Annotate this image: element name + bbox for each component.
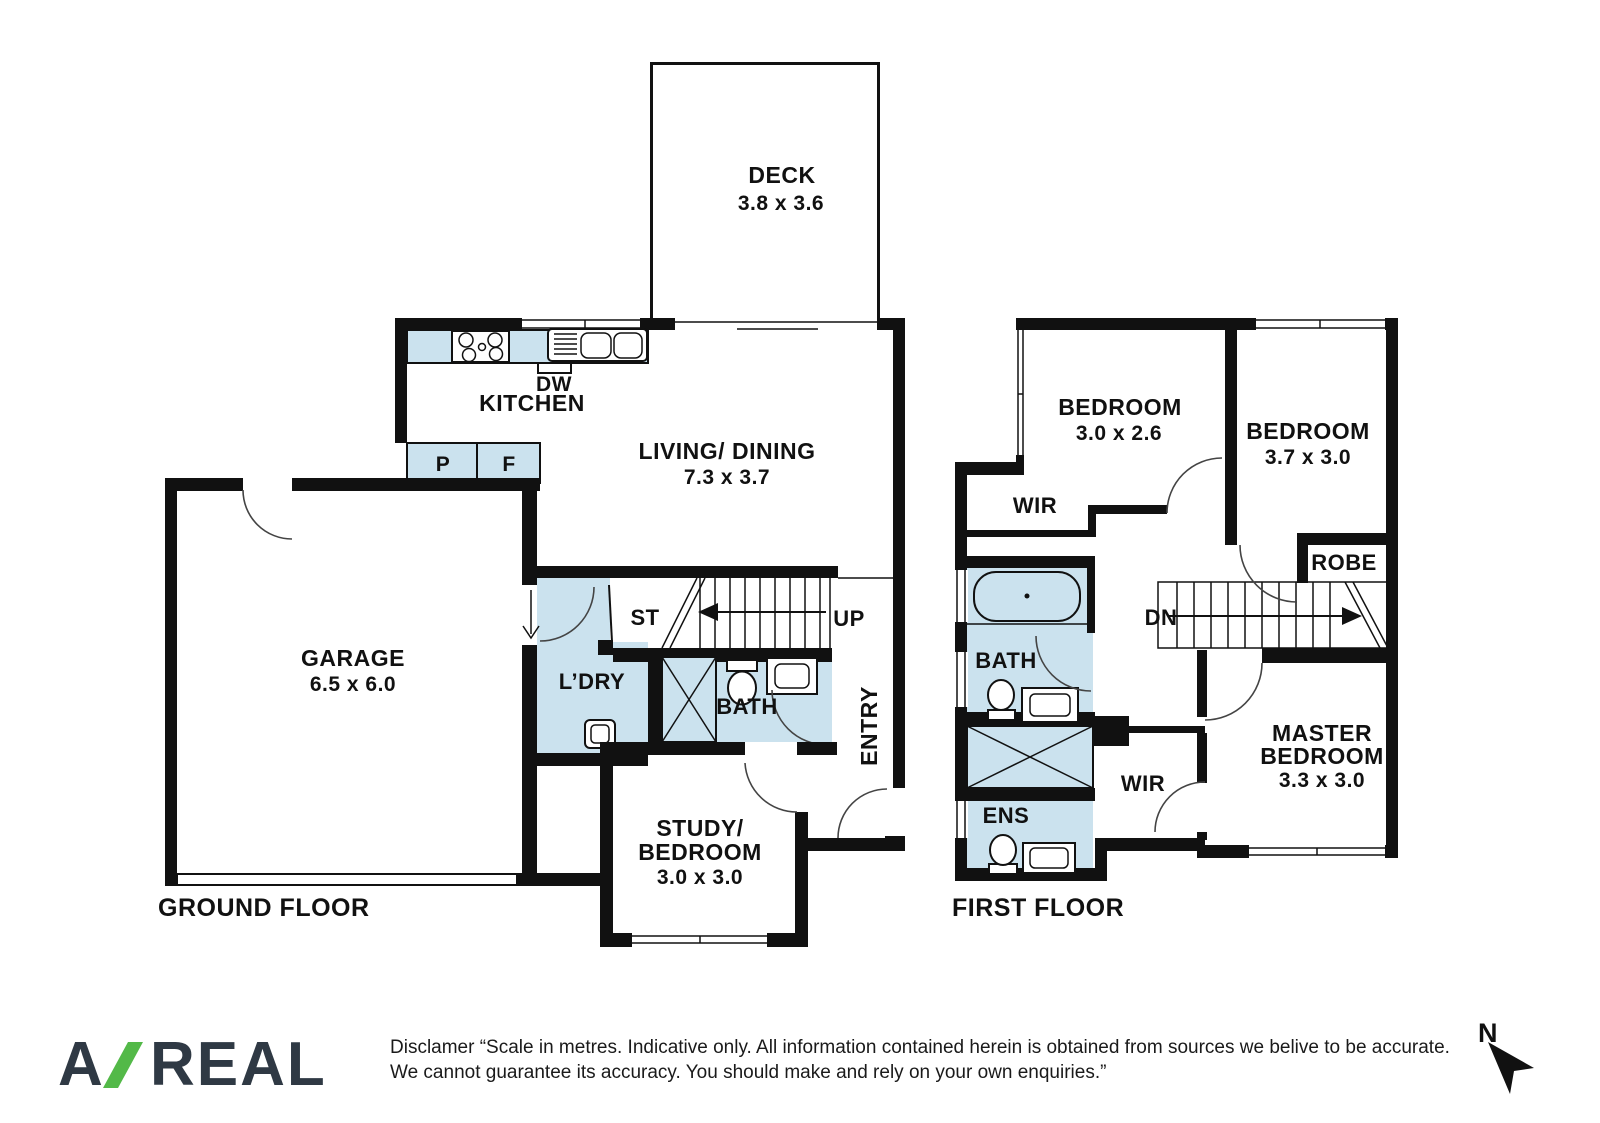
north-label: N xyxy=(1478,1018,1498,1048)
logo-letters-real: REAL xyxy=(150,1030,327,1099)
footer: A REAL Disclamer “Scale in metres. Indic… xyxy=(58,1018,1534,1099)
fridge-label: F xyxy=(502,453,515,476)
garage-dims: 6.5 x 6.0 xyxy=(310,673,396,696)
study-window xyxy=(632,936,767,943)
ff-shower xyxy=(967,726,1093,788)
bedroom2-label: BEDROOM xyxy=(1246,418,1370,444)
master-window xyxy=(1249,848,1385,855)
garage-label: GARAGE xyxy=(301,645,405,671)
north-compass: N xyxy=(1478,1018,1534,1094)
entry-label: ENTRY xyxy=(856,686,882,766)
master-dims: 3.3 x 3.0 xyxy=(1279,769,1365,792)
stairs-up: ST UP xyxy=(630,578,864,648)
disclaimer-line-1: Disclamer “Scale in metres. Indicative o… xyxy=(390,1037,1450,1058)
storage-label: ST xyxy=(630,605,659,630)
ens-toilet-icon xyxy=(990,835,1016,865)
dishwasher-icon xyxy=(538,363,571,373)
logo-letter-a: A xyxy=(58,1030,105,1099)
bedroom2-room: BEDROOM 3.7 x 3.0 xyxy=(1246,418,1370,469)
disclaimer-line-2: We cannot guarantee its accuracy. You sh… xyxy=(390,1062,1106,1083)
ground-floor-title: GROUND FLOOR xyxy=(158,894,370,922)
logo-slash-icon xyxy=(103,1042,143,1088)
bedroom2-dims: 3.7 x 3.0 xyxy=(1265,446,1351,469)
pantry-label: P xyxy=(436,453,451,476)
ground-bath-label: BATH xyxy=(716,694,777,719)
study-label-1: STUDY/ xyxy=(656,815,743,841)
ground-floor-plan: DECK 3.8 x 3.6 xyxy=(158,62,905,947)
bedroom1-room: BEDROOM 3.0 x 2.6 xyxy=(1058,394,1182,445)
laundry-label: L’DRY xyxy=(559,669,625,694)
dn-label: DN xyxy=(1145,605,1178,630)
wir2-label: WIR xyxy=(1121,771,1165,796)
robe-label: ROBE xyxy=(1311,550,1377,575)
deck-room: DECK 3.8 x 3.6 xyxy=(650,62,880,318)
kitchen-window xyxy=(522,320,648,328)
deck-sliding-door xyxy=(675,322,880,329)
study-label-2: BEDROOM xyxy=(638,839,762,865)
bedroom2-window xyxy=(1256,320,1385,328)
north-arrow-icon xyxy=(1488,1042,1534,1094)
first-floor-title: FIRST FLOOR xyxy=(952,894,1124,922)
living-dining-room: LIVING/ DINING 7.3 x 3.7 xyxy=(639,438,816,489)
master-bedroom-room: MASTER BEDROOM 3.3 x 3.0 xyxy=(1260,720,1384,792)
study-room: STUDY/ BEDROOM 3.0 x 3.0 xyxy=(600,742,808,947)
floorplan-canvas: DECK 3.8 x 3.6 xyxy=(0,0,1600,1123)
study-door-arc xyxy=(745,763,797,812)
study-dims: 3.0 x 3.0 xyxy=(657,866,743,889)
bedroom1-door-arc xyxy=(1167,458,1222,513)
deck-dims: 3.8 x 3.6 xyxy=(738,192,824,215)
up-label: UP xyxy=(833,606,865,631)
floorplan-page: DECK 3.8 x 3.6 xyxy=(0,0,1600,1123)
first-floor-plan: BATH ENS xyxy=(952,318,1398,922)
master-door-arc xyxy=(1205,663,1262,720)
entry-area: ENTRY xyxy=(838,686,887,838)
bedroom2-door-arc xyxy=(1240,545,1297,602)
stairs-up-arrow-icon xyxy=(698,603,718,621)
stairs-down: DN xyxy=(1145,582,1388,648)
laundry-step-arrow-icon xyxy=(523,590,539,638)
bedroom1-label: BEDROOM xyxy=(1058,394,1182,420)
garage-entry-door-arc xyxy=(243,490,292,539)
pantry-fridge-cabinet xyxy=(407,443,540,483)
living-dims: 7.3 x 3.7 xyxy=(684,466,770,489)
ff-toilet-icon xyxy=(988,680,1014,710)
garage-door xyxy=(177,874,517,885)
areal-logo: A REAL xyxy=(58,1030,327,1099)
kitchen-label: KITCHEN xyxy=(479,390,585,416)
living-label: LIVING/ DINING xyxy=(639,438,816,464)
entry-door-arc xyxy=(838,789,887,838)
master-label-2: BEDROOM xyxy=(1260,743,1384,769)
bedroom1-window xyxy=(1018,330,1023,458)
ff-bath-label: BATH xyxy=(975,648,1036,673)
bedroom1-dims: 3.0 x 2.6 xyxy=(1076,422,1162,445)
wir1-label: WIR xyxy=(1013,493,1057,518)
deck-label: DECK xyxy=(748,162,815,188)
ens-label: ENS xyxy=(983,803,1030,828)
